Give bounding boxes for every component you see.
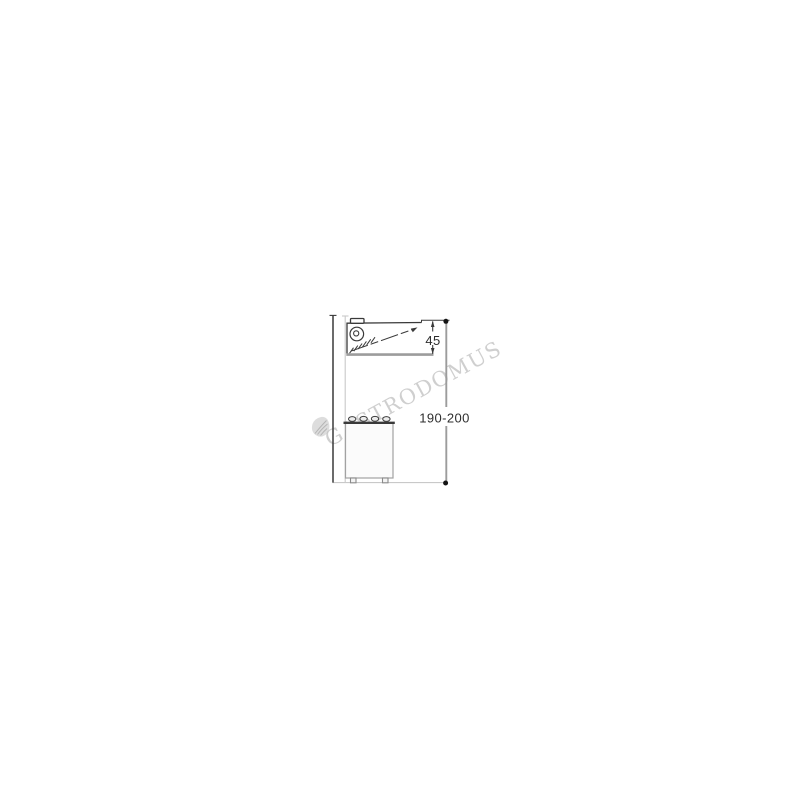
cooker-knob	[371, 416, 378, 421]
cooker-knob	[383, 417, 390, 422]
hood-slope-arrowhead-icon	[411, 327, 418, 332]
cooker-foot	[383, 478, 389, 483]
dim190-label: 190-200	[419, 411, 470, 426]
hood-duct-collar	[351, 319, 365, 324]
cooker-knob	[360, 416, 367, 421]
cooker-foot	[351, 478, 357, 483]
cooker-group	[344, 416, 395, 482]
dimension-hood-height: 45	[425, 321, 442, 354]
wall-group	[330, 315, 337, 482]
dim45-label: 45	[425, 333, 440, 348]
dim190-endpoint-dot-top	[443, 319, 448, 324]
dim45-arrow-up-icon	[431, 321, 435, 327]
technical-drawing-canvas: GASTRODOMUS	[0, 0, 800, 800]
dim45-arrow-down-icon	[431, 348, 435, 354]
dim190-endpoint-dot-bottom	[443, 481, 448, 486]
cooker-knob	[349, 417, 356, 422]
hood-fan-hub-circle	[354, 331, 359, 336]
cooker-body	[346, 423, 394, 478]
product-diagram-page: GASTRODOMUS	[0, 0, 800, 800]
